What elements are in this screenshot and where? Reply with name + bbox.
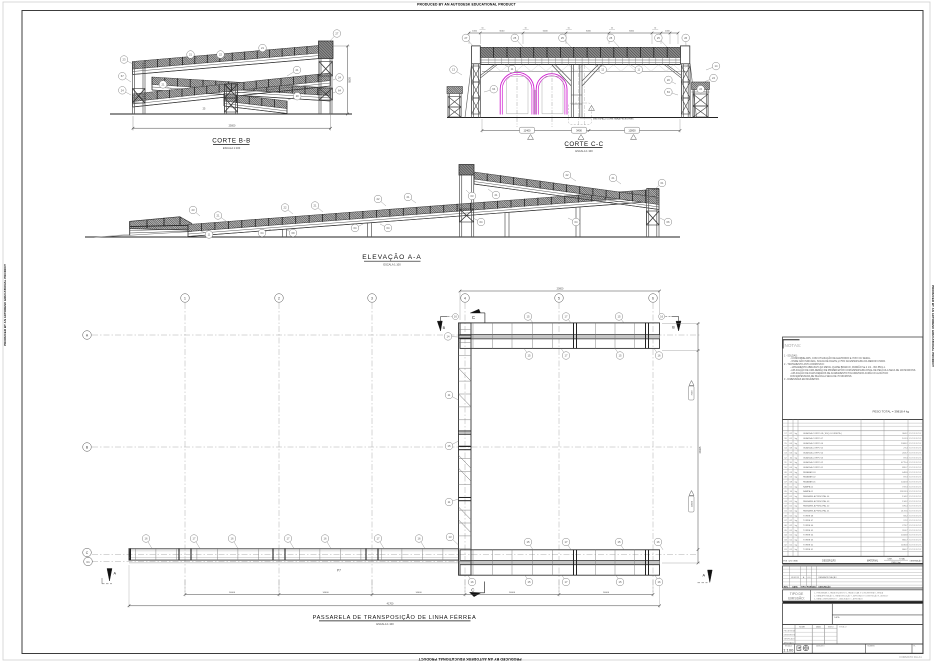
svg-text:XX/XX/XXXX: XX/XX/XXXX xyxy=(909,462,922,464)
svg-text:XX/XX/XXXX: XX/XX/XXXX xyxy=(909,496,922,498)
svg-text:21: 21 xyxy=(495,193,498,197)
svg-text:24: 24 xyxy=(121,88,124,92)
svg-text:XX/XX/XXXX: XX/XX/XXXX xyxy=(909,438,922,440)
svg-text:TORRE 07: TORRE 07 xyxy=(803,520,814,522)
svg-text:- CONFORME AWS, COM UTILIZAÇÃ: - CONFORME AWS, COM UTILIZAÇÃO DE ELETRO… xyxy=(790,357,871,360)
svg-text:1432.8: 1432.8 xyxy=(901,482,908,484)
svg-text:63: 63 xyxy=(667,90,670,94)
svg-text:DATA: DATA xyxy=(816,625,821,628)
svg-text:06: 06 xyxy=(667,220,670,224)
svg-text:CORTE C-C: CORTE C-C xyxy=(564,141,603,148)
svg-text:737.3: 737.3 xyxy=(902,486,908,488)
svg-text:TIPO DE: TIPO DE xyxy=(790,592,804,596)
svg-text:01: 01 xyxy=(661,181,664,185)
svg-text:- ONDE NÃO INDICADA, SOLDA DE: - ONDE NÃO INDICADA, SOLDA DE FILETE p=7… xyxy=(790,360,886,363)
svg-text:VERIFICADO: VERIFICADO xyxy=(784,638,796,641)
svg-text:20000: 20000 xyxy=(557,288,564,291)
svg-text:11400: 11400 xyxy=(523,129,531,133)
svg-text:XX/XX/XXXX: XX/XX/XXXX xyxy=(909,457,922,459)
svg-text:6: 6 xyxy=(652,296,654,300)
svg-text:TORRE 03: TORRE 03 xyxy=(803,540,814,542)
svg-text:DESCRIÇÃO: DESCRIÇÃO xyxy=(822,560,836,563)
svg-text:TÍTULO: TÍTULO xyxy=(839,626,847,629)
svg-text:XX/XX/XXXX: XX/XX/XXXX xyxy=(909,501,922,503)
svg-text:1 - SOLDAS:: 1 - SOLDAS: xyxy=(784,354,798,357)
svg-text:C: C xyxy=(471,587,474,592)
svg-text:16: 16 xyxy=(231,537,234,541)
svg-text:8500: 8500 xyxy=(349,77,352,83)
svg-text:13: 13 xyxy=(452,68,455,72)
svg-text:PATAMAR 01: PATAMAR 01 xyxy=(803,481,816,484)
svg-text:GUARDA-CORPO 04: GUARDA-CORPO 04 xyxy=(803,452,824,455)
svg-text:11: 11 xyxy=(637,68,640,72)
svg-text:2 - PARA APROVAÇÃO 5 - PARA: 2 - PARA APROVAÇÃO 5 - PARA EXECUÇÃO 7 -… xyxy=(814,595,889,598)
svg-text:364.2: 364.2 xyxy=(902,433,908,435)
svg-text:11: 11 xyxy=(448,500,451,504)
svg-text:XX/XX/XXXX: XX/XX/XXXX xyxy=(909,540,922,542)
svg-text:GUARDA-CORPO 08 ( ESQ. E DIREI: GUARDA-CORPO 08 ( ESQ. E DIREITA ) xyxy=(803,432,842,435)
svg-text:XX/XX/XXXX: XX/XX/XXXX xyxy=(909,453,922,455)
svg-text:TORRE 02: TORRE 02 xyxy=(803,544,814,546)
svg-text:1000: 1000 xyxy=(665,31,671,33)
svg-text:14000: 14000 xyxy=(229,592,236,594)
svg-text:134.2: 134.2 xyxy=(902,501,908,503)
svg-text:01/01/13: 01/01/13 xyxy=(791,577,800,579)
svg-text:TORRE 04: TORRE 04 xyxy=(803,535,814,537)
svg-text:866.7: 866.7 xyxy=(902,540,908,542)
svg-text:203.7: 203.7 xyxy=(902,453,908,455)
svg-text:3400: 3400 xyxy=(576,129,582,133)
svg-text:PASSARELA PRINCIPAL 03: PASSARELA PRINCIPAL 03 xyxy=(803,500,830,503)
svg-text:15: 15 xyxy=(618,540,621,544)
svg-text:15: 15 xyxy=(528,580,531,584)
svg-text:3: 3 xyxy=(371,296,373,300)
svg-text:24825: 24825 xyxy=(699,446,702,453)
svg-text:273.7: 273.7 xyxy=(902,525,908,527)
svg-text:15: 15 xyxy=(528,354,531,358)
svg-text:XX/XX/XXXX: XX/XX/XXXX xyxy=(909,530,922,532)
svg-text:04: 04 xyxy=(261,231,264,235)
svg-text:PASSARELA DE TRANSPOSIÇÃO DE L: PASSARELA DE TRANSPOSIÇÃO DE LINHA FÉRRE… xyxy=(313,614,477,621)
svg-text:25: 25 xyxy=(609,36,612,40)
svg-text:820.7: 820.7 xyxy=(902,467,908,469)
svg-text:5000: 5000 xyxy=(629,31,635,33)
svg-text:PARA APROVAÇÃO: PARA APROVAÇÃO xyxy=(819,576,838,579)
svg-text:NOME: NOME xyxy=(799,626,805,628)
svg-text:- APLICAÇÃO DE DUAS DEMÃOS DE: - APLICAÇÃO DE DUAS DEMÃOS DE ACABAMENTO… xyxy=(790,372,888,375)
svg-text:16: 16 xyxy=(657,540,660,544)
svg-text:67: 67 xyxy=(121,74,124,78)
svg-text:XX/XX/XXXX: XX/XX/XXXX xyxy=(909,477,922,479)
svg-text:11: 11 xyxy=(511,67,514,71)
svg-text:17: 17 xyxy=(377,537,380,541)
svg-text:XX/XX/XXXX: XX/XX/XXXX xyxy=(909,544,922,546)
svg-text:C1: C1 xyxy=(86,560,90,564)
svg-text:866.7: 866.7 xyxy=(902,549,908,551)
svg-text:DESCRIÇÃO: DESCRIÇÃO xyxy=(819,586,831,589)
svg-text:16: 16 xyxy=(658,354,661,358)
svg-text:648.8: 648.8 xyxy=(902,472,908,474)
svg-text:1: 1 xyxy=(184,296,186,300)
svg-text:PATAMAR 02: PATAMAR 02 xyxy=(803,476,816,479)
svg-text:22: 22 xyxy=(377,197,380,201)
svg-text:ESCALA 1:100: ESCALA 1:100 xyxy=(223,146,241,150)
svg-text:25: 25 xyxy=(513,36,516,40)
svg-text:5000: 5000 xyxy=(499,31,505,33)
svg-text:5000: 5000 xyxy=(586,31,592,33)
svg-text:DES.: DES. xyxy=(812,587,817,589)
svg-text:DESENHISTA: DESENHISTA xyxy=(784,634,796,637)
svg-text:21: 21 xyxy=(314,204,317,208)
svg-text:04: 04 xyxy=(575,220,578,224)
svg-text:17: 17 xyxy=(193,537,196,541)
svg-text:2172.6: 2172.6 xyxy=(901,511,908,513)
svg-text:4779.4: 4779.4 xyxy=(901,462,908,464)
svg-text:TORRE 08: TORRE 08 xyxy=(803,515,814,517)
svg-text:04: 04 xyxy=(354,226,357,230)
svg-text:- APLICAÇÃO DE UMA DEMÃO DE P: - APLICAÇÃO DE UMA DEMÃO DE PRIMER EPÓXI… xyxy=(790,369,916,372)
svg-text:XX/XX/XXXX: XX/XX/XXXX xyxy=(909,433,922,435)
svg-text:21: 21 xyxy=(217,214,220,218)
svg-text:CORTE B-B: CORTE B-B xyxy=(212,138,251,145)
svg-text:GUARDA-CORPO 01: GUARDA-CORPO 01 xyxy=(803,466,824,469)
svg-text:17: 17 xyxy=(565,354,568,358)
svg-text:PRODUCED BY AN AUTODESK EDUCAT: PRODUCED BY AN AUTODESK EDUCATIONAL PROD… xyxy=(417,3,516,7)
svg-text:14000: 14000 xyxy=(603,592,610,594)
svg-text:1308.2: 1308.2 xyxy=(901,443,908,445)
svg-text:15: 15 xyxy=(527,540,530,544)
svg-text:EMISSÃO:: EMISSÃO: xyxy=(788,595,804,600)
svg-text:4: 4 xyxy=(464,296,466,300)
svg-text:21: 21 xyxy=(296,68,299,72)
svg-text:1000: 1000 xyxy=(472,31,478,33)
svg-text:25000: 25000 xyxy=(229,125,236,128)
svg-text:MIN ESPAÇO LIVRE PARA PEDESTRE: MIN ESPAÇO LIVRE PARA PEDESTRES xyxy=(593,118,634,121)
svg-text:PESO TOTAL = 39818.4 kg: PESO TOTAL = 39818.4 kg xyxy=(873,410,910,414)
svg-text:1034.8: 1034.8 xyxy=(901,535,908,537)
svg-text:XX/XX/XXXX: XX/XX/XXXX xyxy=(909,511,922,513)
svg-text:XX/XX/XXXX: XX/XX/XXXX xyxy=(909,549,922,551)
svg-text:25: 25 xyxy=(657,36,660,40)
svg-text:GUARDA-CORPO 05: GUARDA-CORPO 05 xyxy=(803,447,824,450)
svg-text:PATAMAR 03: PATAMAR 03 xyxy=(803,471,816,474)
svg-text:16: 16 xyxy=(418,537,421,541)
svg-text:16: 16 xyxy=(145,537,148,541)
svg-text:DATA: DATA xyxy=(792,586,798,589)
svg-text:16: 16 xyxy=(454,315,457,319)
svg-text:11: 11 xyxy=(448,393,451,397)
svg-text:1186.8: 1186.8 xyxy=(901,544,908,546)
svg-text:DATA: DATA xyxy=(834,616,840,619)
svg-text:21: 21 xyxy=(261,46,264,50)
svg-text:12800: 12800 xyxy=(628,129,636,133)
svg-text:09: 09 xyxy=(292,231,295,235)
svg-text:ESCALA 1:100: ESCALA 1:100 xyxy=(575,149,593,153)
svg-text:A: A xyxy=(114,572,117,576)
svg-text:C: C xyxy=(472,315,475,320)
svg-text:COM ESPESSURA DE PELÍCULA SECA: COM ESPESSURA DE PELÍCULA SECA DE 70 MIC… xyxy=(790,375,852,378)
svg-text:P7: P7 xyxy=(337,569,341,573)
svg-text:27: 27 xyxy=(335,32,338,36)
svg-text:1 - PRELIMINAR 4: 1 - PRELIMINAR 4 - PARA ORQUESTO 6 - PAR… xyxy=(814,592,884,595)
svg-text:17: 17 xyxy=(287,537,290,541)
svg-text:- JATEAMENTO ABRASIVO AO META: - JATEAMENTO ABRASIVO AO METAL QUASE BRA… xyxy=(790,366,886,369)
svg-text:XX/XX/XXXX: XX/XX/XXXX xyxy=(909,467,922,469)
svg-text:134.2: 134.2 xyxy=(902,496,908,498)
svg-text:26: 26 xyxy=(684,36,687,40)
svg-text:2 - TRATAMENTO ANTI-CORROSIVO: 2 - TRATAMENTO ANTI-CORROSIVO: xyxy=(784,363,825,366)
svg-text:15: 15 xyxy=(527,315,530,319)
svg-text:1:100: 1:100 xyxy=(783,647,794,652)
svg-text:XX/XX/XXXX: XX/XX/XXXX xyxy=(909,448,922,450)
svg-text:RAMPA 01: RAMPA 01 xyxy=(803,490,814,493)
svg-text:NÚMERO: NÚMERO xyxy=(868,645,876,648)
svg-text:21: 21 xyxy=(612,176,615,180)
svg-text:PASSARELA PRINCIPAL 02: PASSARELA PRINCIPAL 02 xyxy=(803,505,830,508)
svg-text:22: 22 xyxy=(219,53,222,57)
svg-text:20: 20 xyxy=(296,94,299,98)
svg-text:27: 27 xyxy=(464,36,467,40)
svg-text:20: 20 xyxy=(667,78,670,82)
svg-text:UNID: UNID xyxy=(793,561,798,563)
svg-text:OBSERVAÇÃO: OBSERVAÇÃO xyxy=(910,560,922,563)
svg-text:5: 5 xyxy=(558,296,560,300)
svg-text:16: 16 xyxy=(324,537,327,541)
svg-text:14000: 14000 xyxy=(322,592,329,594)
svg-text:TOTAL: TOTAL xyxy=(899,557,905,560)
svg-text:XX/XX/XXXX: XX/XX/XXXX xyxy=(909,535,922,537)
svg-text:21: 21 xyxy=(162,82,165,86)
svg-text:XX/XX/XXXX: XX/XX/XXXX xyxy=(909,482,922,484)
svg-text:24: 24 xyxy=(338,75,341,79)
svg-text:TORRE 06: TORRE 06 xyxy=(803,525,814,527)
svg-text:23: 23 xyxy=(123,58,126,62)
svg-text:PROJETISTA: PROJETISTA xyxy=(784,630,796,633)
svg-text:XX/XX/XXXX: XX/XX/XXXX xyxy=(909,472,922,474)
svg-text:PASSARELA PRINCIPAL 04: PASSARELA PRINCIPAL 04 xyxy=(803,495,830,498)
svg-text:03: 03 xyxy=(471,194,474,198)
svg-text:17: 17 xyxy=(565,315,568,319)
svg-text:25: 25 xyxy=(561,36,564,40)
svg-text:ASSUNTO: ASSUNTO xyxy=(816,645,825,648)
svg-text:101.3: 101.3 xyxy=(902,438,908,440)
svg-text:GUARDA-CORPO 07: GUARDA-CORPO 07 xyxy=(803,437,824,440)
svg-text:22: 22 xyxy=(566,173,569,177)
svg-text:17: 17 xyxy=(565,580,568,584)
svg-text:15: 15 xyxy=(619,580,622,584)
svg-text:XX/XX/XXXX: XX/XX/XXXX xyxy=(909,520,922,522)
svg-text:XX/XX/XXXX: XX/XX/XXXX xyxy=(909,486,922,488)
svg-text:3 - DIMENSÕES EM MILÍMETRO.: 3 - DIMENSÕES EM MILÍMETRO. xyxy=(784,378,820,381)
svg-text:11: 11 xyxy=(208,233,211,237)
svg-text:MATERIAL: MATERIAL xyxy=(867,560,879,563)
svg-text:GUARDA-CORPO 03: GUARDA-CORPO 03 xyxy=(803,456,824,459)
svg-text:14000: 14000 xyxy=(509,592,516,594)
svg-text:24: 24 xyxy=(699,87,702,91)
svg-text:64: 64 xyxy=(492,87,495,91)
svg-text:7500: 7500 xyxy=(692,390,694,396)
svg-text:953.7: 953.7 xyxy=(902,530,908,532)
svg-text:16: 16 xyxy=(660,314,663,318)
svg-text:64: 64 xyxy=(480,220,483,224)
svg-text:24: 24 xyxy=(712,76,715,80)
svg-text:16: 16 xyxy=(658,580,661,584)
svg-text:12: 12 xyxy=(601,68,604,72)
svg-text:64: 64 xyxy=(338,88,341,92)
svg-text:VISTO: VISTO xyxy=(828,626,834,628)
svg-text:14: 14 xyxy=(715,64,718,68)
svg-text:TORRE 05: TORRE 05 xyxy=(803,530,814,532)
svg-text:TORRE 01: TORRE 01 xyxy=(803,549,814,551)
svg-text:XX/XX/XXXX: XX/XX/XXXX xyxy=(909,506,922,508)
svg-text:REV.: REV. xyxy=(784,587,789,589)
svg-text:22: 22 xyxy=(284,206,287,210)
svg-text:XX/XX/XXXX: XX/XX/XXXX xyxy=(909,525,922,527)
svg-text:XX/XX/XXXX: XX/XX/XXXX xyxy=(909,515,922,517)
svg-text:A: A xyxy=(703,574,706,578)
svg-text:GUARDA-CORPO 02: GUARDA-CORPO 02 xyxy=(803,461,824,464)
svg-text:14: 14 xyxy=(447,334,450,338)
svg-text:NOTAS:: NOTAS: xyxy=(785,343,802,348)
svg-text:ESCALA 1:100: ESCALA 1:100 xyxy=(383,262,401,266)
svg-text:15: 15 xyxy=(618,315,621,319)
svg-text:RAMPA 02: RAMPA 02 xyxy=(803,485,814,488)
svg-text:XX/XX/XXXX: XX/XX/XXXX xyxy=(909,491,922,493)
svg-text:XX/XX/XXXX: XX/XX/XXXX xyxy=(909,443,922,445)
svg-text:TIPO: TIPO xyxy=(801,587,806,589)
svg-text:16: 16 xyxy=(471,580,474,584)
svg-text:14825: 14825 xyxy=(692,500,694,507)
svg-text:15: 15 xyxy=(619,354,622,358)
svg-text:FORMATO DA A1: FORMATO DA A1 xyxy=(900,655,923,659)
svg-text:PRODUCED BY AN AUTODESK EDUCAT: PRODUCED BY AN AUTODESK EDUCATIONAL PROD… xyxy=(931,285,935,367)
svg-text:41700: 41700 xyxy=(387,602,394,605)
svg-text:15: 15 xyxy=(448,444,451,448)
svg-text:21: 21 xyxy=(407,195,410,199)
svg-text:GUARDA-CORPO 06: GUARDA-CORPO 06 xyxy=(803,442,824,445)
svg-text:2: 2 xyxy=(278,296,280,300)
svg-text:04: 04 xyxy=(387,226,390,230)
svg-text:ESCALA 1:100: ESCALA 1:100 xyxy=(376,622,394,626)
svg-text:ELEVAÇÃO A-A: ELEVAÇÃO A-A xyxy=(362,252,422,261)
svg-text:12674.3: 12674.3 xyxy=(900,491,908,493)
svg-text:3 - PARA CONHECIMENTO T - CAN: 3 - PARA CONHECIMENTO T - CANCELADO C - … xyxy=(814,598,863,601)
svg-text:14000: 14000 xyxy=(415,592,422,594)
svg-text:376.4: 376.4 xyxy=(902,506,908,508)
svg-text:23: 23 xyxy=(192,208,195,212)
svg-text:13: 13 xyxy=(449,535,452,539)
svg-text:21: 21 xyxy=(189,53,192,57)
svg-text:PRODUCED BY AN AUTODESK EDUCAT: PRODUCED BY AN AUTODESK EDUCATIONAL PROD… xyxy=(418,657,522,661)
svg-text:PASSARELA PRINCIPAL 01: PASSARELA PRINCIPAL 01 xyxy=(803,510,830,513)
svg-text:17: 17 xyxy=(565,540,568,544)
svg-text:PRODUCED BY AN AUTODESK EDUCAT: PRODUCED BY AN AUTODESK EDUCATIONAL PROD… xyxy=(3,264,7,346)
svg-text:5000: 5000 xyxy=(543,31,549,33)
